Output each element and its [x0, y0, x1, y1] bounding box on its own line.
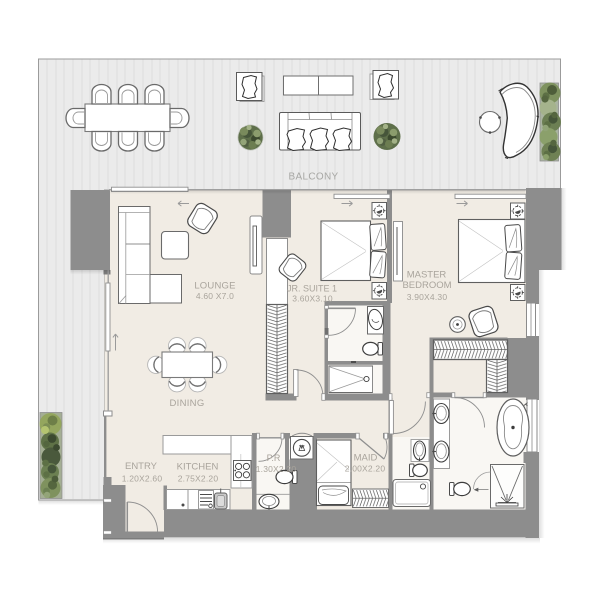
svg-text:MAID: MAID	[354, 453, 378, 464]
svg-text:JR. SUITE 1: JR. SUITE 1	[287, 284, 337, 294]
svg-text:3.90X4.30: 3.90X4.30	[407, 292, 448, 302]
svg-text:MASTER: MASTER	[407, 270, 447, 281]
svg-text:3.60X3.10: 3.60X3.10	[292, 294, 333, 304]
svg-text:DINING: DINING	[169, 398, 204, 409]
svg-text:ENTRY: ENTRY	[125, 461, 158, 472]
svg-text:1.30X2.20: 1.30X2.20	[256, 464, 297, 474]
svg-text:4.60 X7.0: 4.60 X7.0	[196, 291, 234, 301]
svg-text:BEDROOM: BEDROOM	[402, 280, 451, 291]
svg-text:LOUNGE: LOUNGE	[194, 281, 235, 292]
svg-text:BALCONY: BALCONY	[289, 172, 339, 183]
svg-text:P.R: P.R	[267, 453, 281, 463]
svg-text:1.20X2.60: 1.20X2.60	[122, 474, 163, 484]
svg-text:2.00X2.20: 2.00X2.20	[345, 464, 386, 474]
svg-text:KITCHEN: KITCHEN	[177, 462, 219, 473]
svg-text:2.75X2.20: 2.75X2.20	[178, 474, 219, 484]
